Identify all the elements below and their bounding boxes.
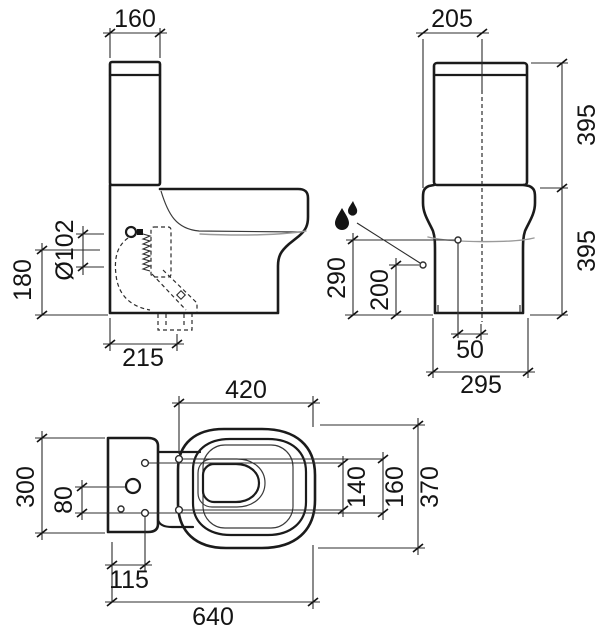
front-bowl-outline [423,185,535,313]
front-rim-point [455,237,461,243]
dim-side-tank-width: 160 [103,5,167,58]
side-inlet-circle [126,227,136,237]
dim-label-center-to-side: 205 [431,5,473,33]
dim-label-seat-length: 420 [225,376,267,404]
plan-seat-hole-bottom [176,507,183,514]
plan-tank-outline [108,438,158,532]
front-view: 205 395 395 290 200 [323,5,601,399]
side-flush-coil [143,234,150,271]
dim-label-overall-length: 640 [192,603,234,631]
side-trap-diamond [177,291,185,299]
dim-plan-seat-length: 420 [172,376,320,454]
dim-label-tank-height: 395 [573,104,601,146]
dim-label-inlet-spacing: 80 [50,486,78,514]
plan-tank-hole-top [142,460,149,467]
dim-label-tank-depth: 300 [12,466,40,508]
side-trap-diagonal-1 [152,274,186,310]
technical-drawing: 160 Ø102 180 215 [0,0,604,636]
water-drops-icon [335,201,357,230]
dim-label-supply-height: 200 [366,269,394,311]
dim-side-trap-distance: 215 [103,318,184,372]
front-rim-arc [428,237,534,242]
front-foot-lines [438,305,520,312]
side-bowl-outline [110,185,308,313]
dim-label-supply-offset: 50 [456,336,484,364]
side-rim-inner-line [161,191,301,232]
plan-seat-hole-top [176,456,183,463]
dim-label-tank-width: 160 [114,5,156,33]
toilet-dimension-diagram: 160 Ø102 180 215 [0,0,604,636]
side-view: 160 Ø102 180 215 [9,5,308,372]
dim-front-supply-offset: 50 [451,324,488,364]
plan-small-hole [118,506,124,512]
plan-inlet-hole [126,479,140,493]
dim-label-bowl-width: 370 [416,466,444,508]
dim-label-bowl-height: 395 [573,230,601,272]
front-supply-leader [357,223,420,263]
dim-front-center-to-side: 205 [416,5,489,188]
dim-plan-fixing-hole-offset: 115 [105,517,152,602]
side-inlet-square [137,229,143,235]
dim-plan-tank-depth: 300 [12,431,105,540]
dim-plan-fixing-hole-span: 160 [378,452,409,520]
dim-label-hinge-hole-span: 140 [343,466,371,508]
plan-water-inner [203,464,259,502]
side-tank-outline [110,62,160,185]
side-trap-dashed-box [151,227,171,277]
dim-plan-inlet-spacing: 80 [50,480,87,520]
plan-hole-leaders [75,459,383,513]
plan-tank-hole-bottom [142,510,149,517]
dim-label-fixing-hole-offset: 115 [109,566,149,594]
dim-plan-hinge-hole-span: 140 [338,456,371,517]
side-outlet-dashed [158,314,192,330]
dim-label-trap-distance: 215 [122,344,164,372]
dim-front-supply-height: 200 [366,258,419,319]
front-tank-outline [434,63,527,185]
dim-label-fixing-hole-span: 160 [381,466,409,508]
dim-label-inlet-height: 180 [9,259,37,301]
plan-inner-rim [203,445,293,528]
dim-label-base-width: 295 [460,371,502,399]
plan-view: 420 300 80 140 160 [12,376,444,631]
side-outlet-dashed-inner [166,314,184,327]
front-supply-point [420,262,426,268]
dim-label-rim-height: 290 [323,257,351,299]
dim-front-heights: 395 395 [530,59,601,319]
